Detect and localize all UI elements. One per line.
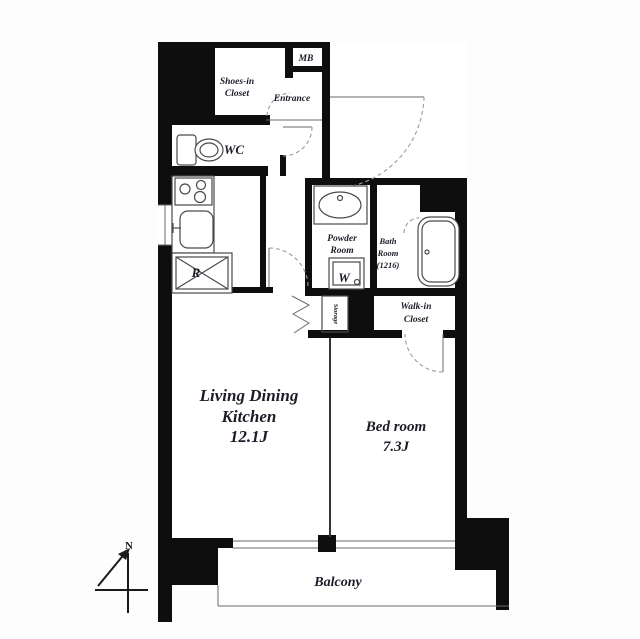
label-powder-room: Powder <box>327 234 357 244</box>
label-bath-room: (1216) <box>377 260 400 270</box>
stove-icon <box>175 178 212 205</box>
wall-segment <box>215 42 330 48</box>
label-powder-room: Room <box>329 246 353 256</box>
label-shoes-closet: Shoes-in <box>220 77 254 87</box>
floor-plan: Shoes-in Closet MB Entrance WC Powder Ro… <box>0 0 640 639</box>
label-walkin-closet: Walk-in <box>401 302 432 312</box>
wall-segment <box>158 166 268 176</box>
wall-segment <box>218 538 233 548</box>
wall-segment <box>322 42 330 178</box>
wall-segment <box>455 518 509 570</box>
label-ldk: Living Dining <box>199 386 299 405</box>
label-bedroom: Bed room <box>365 419 426 435</box>
wall-segment <box>228 287 273 293</box>
wall-segment <box>305 178 312 288</box>
wall-segment <box>308 330 350 338</box>
wall-segment <box>158 115 270 125</box>
label-shoes-closet: Closet <box>225 89 250 99</box>
label-fridge: R <box>191 265 201 280</box>
label-bath-room: Room <box>377 248 399 258</box>
label-walkin-closet: Closet <box>404 315 429 325</box>
label-bath-room: Bath <box>378 236 396 246</box>
wall-segment <box>443 330 455 338</box>
label-storage: Storage <box>332 304 339 325</box>
wall-segment <box>496 570 509 610</box>
wall-segment <box>260 176 266 287</box>
wall-segment <box>420 178 467 212</box>
label-wc: WC <box>224 142 245 157</box>
wall-segment <box>318 535 336 552</box>
label-ldk: Kitchen <box>221 407 277 426</box>
label-entrance: Entrance <box>273 94 311 104</box>
label-mb: MB <box>298 54 314 64</box>
label-ldk: 12.1J <box>230 427 269 446</box>
wall-segment <box>370 185 377 288</box>
wall-segment <box>280 155 286 176</box>
wall-segment <box>374 330 402 338</box>
wall-segment <box>288 66 328 72</box>
bathtub-icon <box>418 217 459 286</box>
label-bedroom: 7.3J <box>383 439 410 455</box>
label-balcony: Balcony <box>313 575 362 590</box>
wall-segment <box>158 42 215 125</box>
kitchen-window <box>158 205 172 245</box>
wall-segment <box>158 538 218 585</box>
fridge-icon <box>172 253 232 293</box>
label-north: N <box>125 540 133 552</box>
wall-segment <box>348 296 374 338</box>
wall-segment <box>285 42 293 78</box>
floor-plan-page: Shoes-in Closet MB Entrance WC Powder Ro… <box>0 0 640 639</box>
label-washer: W <box>338 270 351 285</box>
